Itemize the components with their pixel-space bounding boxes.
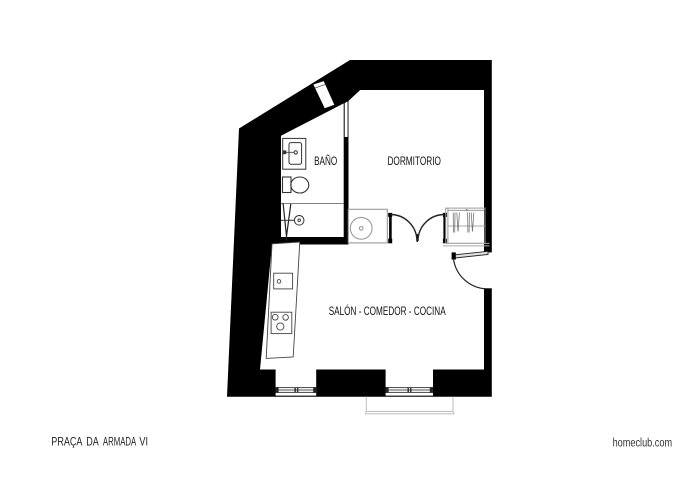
svg-text:SALÓN - COMEDOR - COCINA: SALÓN - COMEDOR - COCINA [329, 303, 446, 318]
svg-text:VI: VI [139, 436, 148, 448]
svg-text:PRAÇA: PRAÇA [51, 436, 82, 448]
svg-text:homeclub.com: homeclub.com [613, 437, 673, 449]
svg-text:DORMITORIO: DORMITORIO [387, 154, 441, 168]
svg-text:BAÑO: BAÑO [314, 154, 337, 168]
svg-text:ARMADA: ARMADA [103, 436, 137, 448]
svg-text:DA: DA [86, 436, 99, 448]
